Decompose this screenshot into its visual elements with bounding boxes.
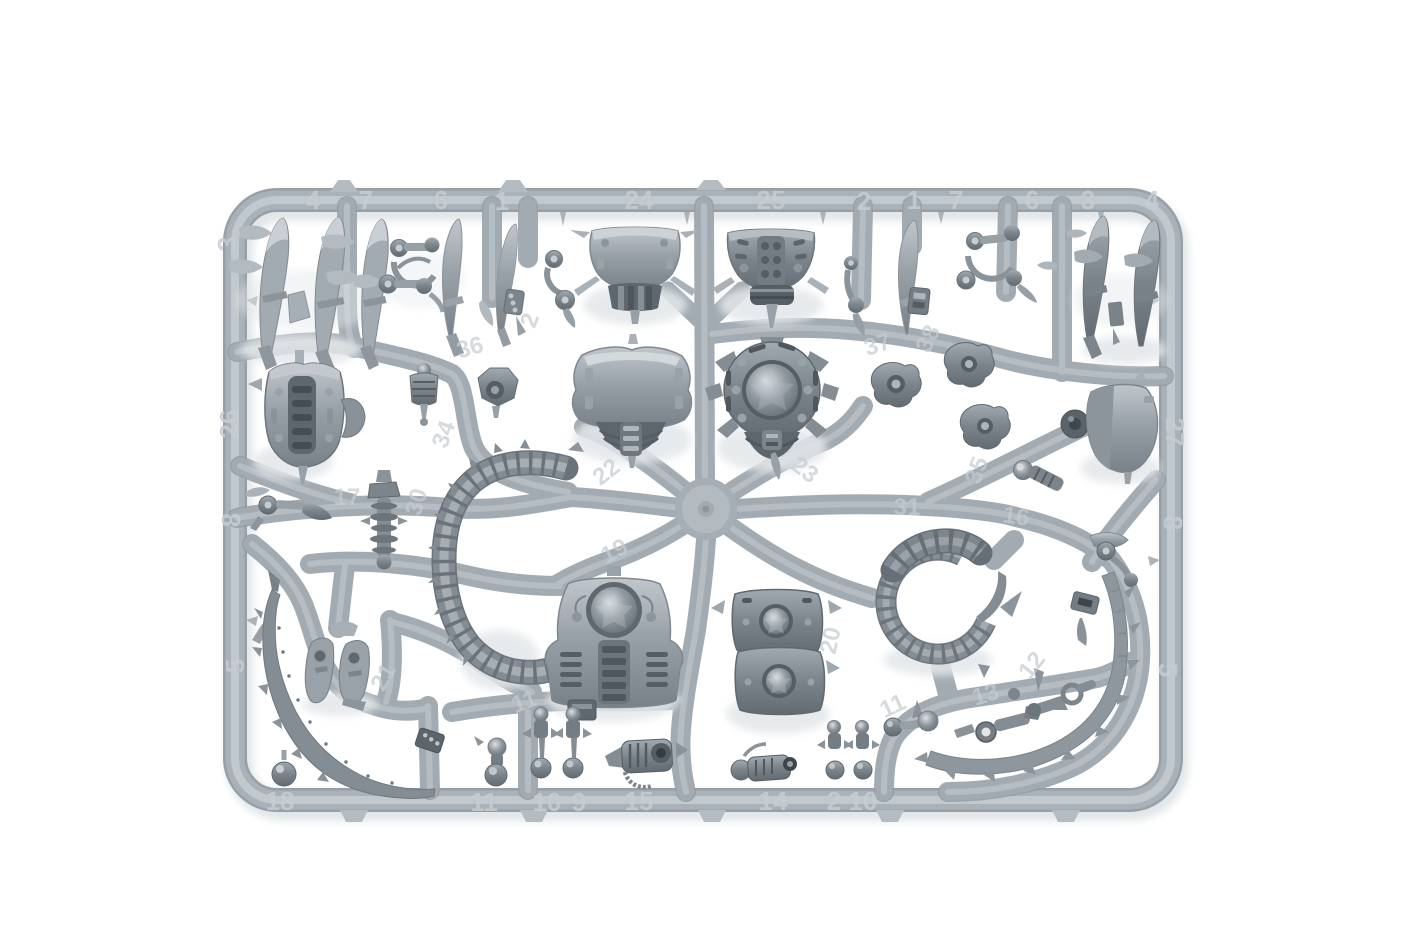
svg-text:14: 14 bbox=[759, 786, 788, 816]
svg-text:20: 20 bbox=[815, 625, 847, 657]
svg-text:31: 31 bbox=[894, 494, 921, 521]
svg-text:4: 4 bbox=[1145, 185, 1160, 215]
svg-text:8: 8 bbox=[216, 513, 246, 527]
svg-text:10: 10 bbox=[849, 786, 878, 816]
svg-text:5: 5 bbox=[1153, 663, 1183, 677]
svg-text:3: 3 bbox=[212, 237, 242, 251]
svg-text:11: 11 bbox=[470, 787, 498, 817]
svg-text:2: 2 bbox=[827, 786, 841, 816]
svg-text:27: 27 bbox=[1160, 418, 1190, 447]
svg-text:16: 16 bbox=[1001, 501, 1031, 531]
svg-text:7: 7 bbox=[949, 185, 963, 215]
svg-text:1: 1 bbox=[907, 185, 921, 215]
svg-text:3: 3 bbox=[1081, 185, 1095, 215]
svg-text:9: 9 bbox=[572, 787, 586, 817]
svg-text:1: 1 bbox=[495, 186, 509, 216]
svg-text:2: 2 bbox=[857, 186, 871, 216]
svg-text:24: 24 bbox=[625, 185, 654, 215]
svg-text:17: 17 bbox=[334, 484, 361, 511]
svg-text:10: 10 bbox=[533, 787, 562, 817]
svg-text:6: 6 bbox=[434, 185, 448, 215]
svg-text:8: 8 bbox=[1158, 516, 1188, 530]
svg-text:26: 26 bbox=[214, 410, 244, 439]
svg-text:18: 18 bbox=[266, 786, 295, 816]
svg-text:5: 5 bbox=[220, 659, 250, 673]
svg-text:6: 6 bbox=[1025, 185, 1039, 215]
svg-text:25: 25 bbox=[757, 185, 786, 215]
svg-text:4: 4 bbox=[306, 185, 321, 215]
svg-text:15: 15 bbox=[625, 786, 654, 816]
svg-text:7: 7 bbox=[359, 185, 373, 215]
